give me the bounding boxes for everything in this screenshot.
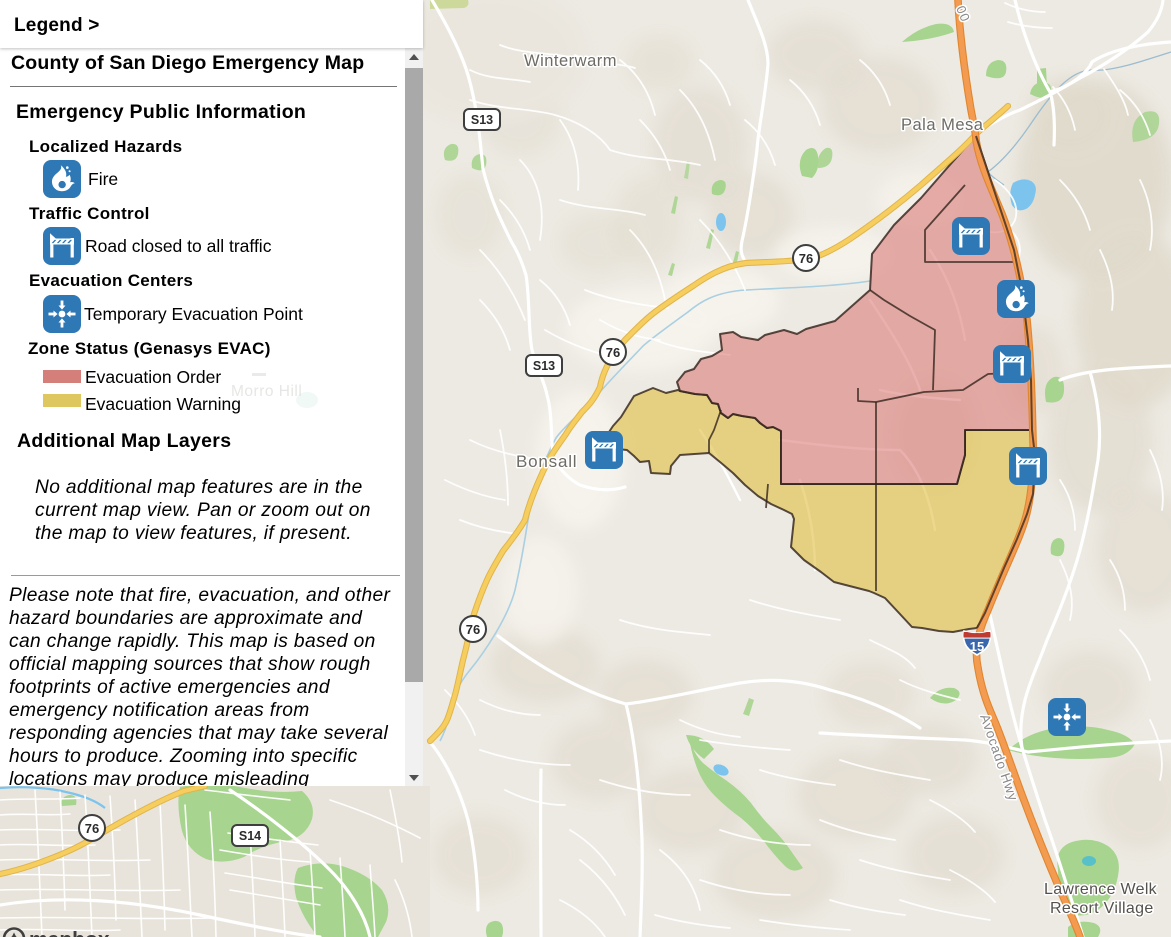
svg-text:76: 76 — [85, 821, 99, 836]
svg-text:S13: S13 — [471, 113, 493, 127]
svg-text:15: 15 — [970, 639, 984, 654]
svg-text:Winterwarm: Winterwarm — [524, 52, 617, 70]
svg-text:mapbox: mapbox — [29, 929, 110, 937]
svg-text:76: 76 — [799, 251, 813, 266]
svg-text:76: 76 — [466, 622, 480, 637]
svg-text:Bonsall: Bonsall — [516, 452, 577, 471]
svg-text:Pala Mesa: Pala Mesa — [901, 116, 984, 134]
svg-text:Lawrence Welk: Lawrence Welk — [1044, 881, 1158, 898]
svg-text:Resort Village: Resort Village — [1050, 900, 1154, 917]
svg-text:S13: S13 — [533, 359, 555, 373]
svg-text:76: 76 — [606, 345, 620, 360]
svg-text:S14: S14 — [239, 829, 261, 843]
